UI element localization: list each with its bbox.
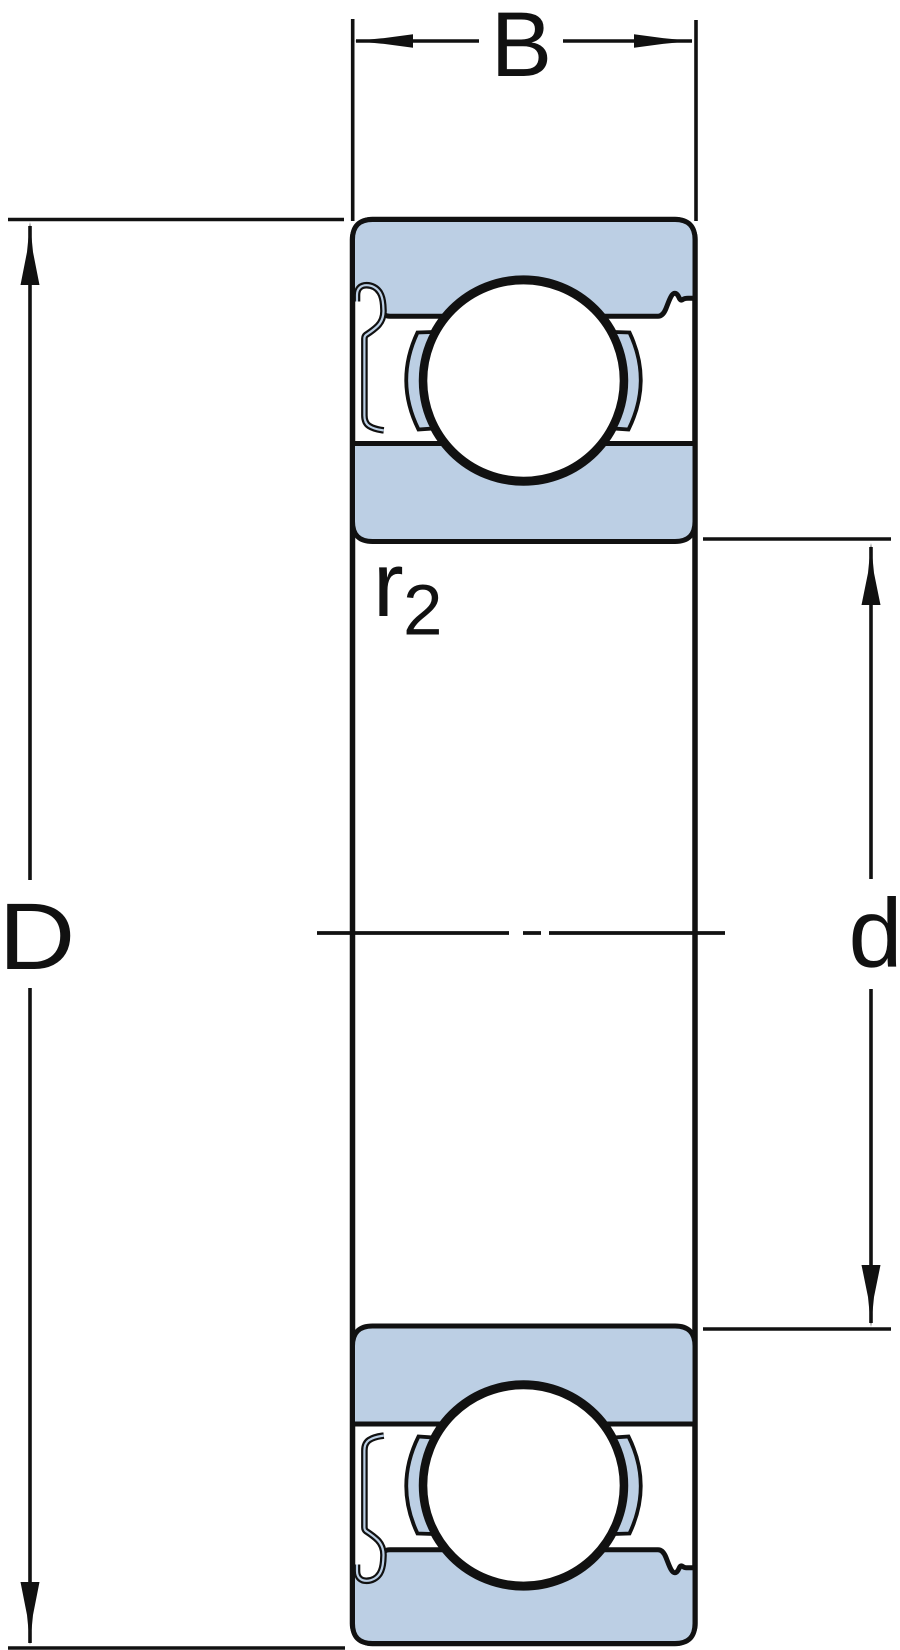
svg-text:2: 2 bbox=[403, 572, 443, 651]
svg-text:r: r bbox=[373, 534, 404, 636]
svg-text:B: B bbox=[491, 0, 552, 96]
svg-text:d: d bbox=[849, 879, 900, 988]
svg-text:D: D bbox=[0, 884, 75, 989]
